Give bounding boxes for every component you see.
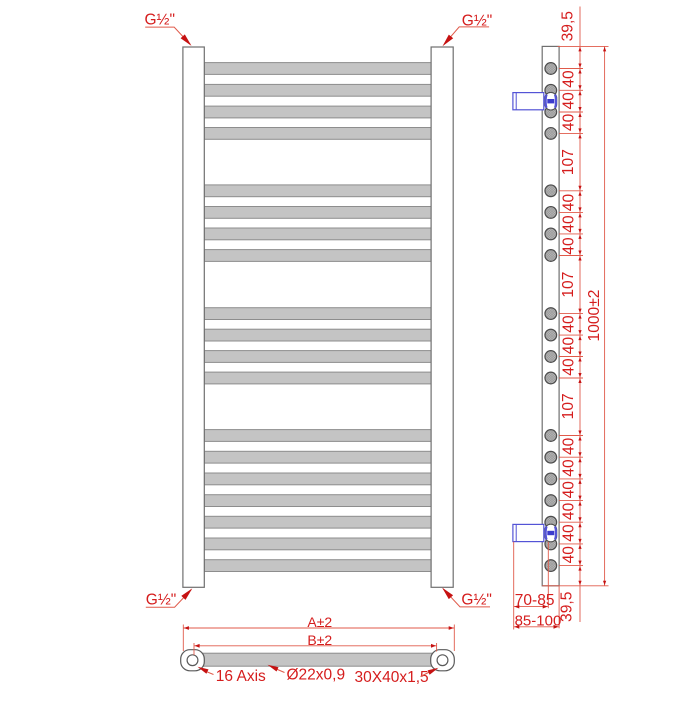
svg-text:16 Axis: 16 Axis [216, 668, 266, 685]
svg-text:107: 107 [560, 393, 577, 419]
svg-text:107: 107 [560, 272, 577, 298]
svg-text:40: 40 [561, 215, 578, 233]
svg-text:40: 40 [561, 194, 578, 212]
svg-text:Ø22x0,9: Ø22x0,9 [287, 666, 346, 683]
svg-text:30X40x1,5: 30X40x1,5 [355, 669, 429, 686]
svg-text:40: 40 [561, 358, 578, 376]
svg-text:40: 40 [561, 502, 578, 520]
svg-text:40: 40 [561, 459, 578, 477]
svg-text:40: 40 [561, 315, 578, 333]
svg-text:40: 40 [561, 546, 578, 564]
svg-text:40: 40 [561, 70, 578, 88]
svg-text:40: 40 [561, 92, 578, 110]
svg-text:G½": G½" [145, 12, 176, 29]
svg-text:1000±2: 1000±2 [586, 290, 603, 342]
svg-text:40: 40 [561, 524, 578, 542]
svg-text:39,5: 39,5 [559, 11, 576, 42]
svg-text:G½": G½" [146, 592, 177, 609]
svg-text:40: 40 [561, 113, 578, 131]
svg-text:40: 40 [561, 481, 578, 499]
svg-text:40: 40 [561, 437, 578, 455]
svg-text:G½": G½" [461, 591, 492, 608]
svg-text:40: 40 [561, 337, 578, 355]
svg-text:107: 107 [560, 149, 577, 175]
svg-text:40: 40 [561, 237, 578, 255]
